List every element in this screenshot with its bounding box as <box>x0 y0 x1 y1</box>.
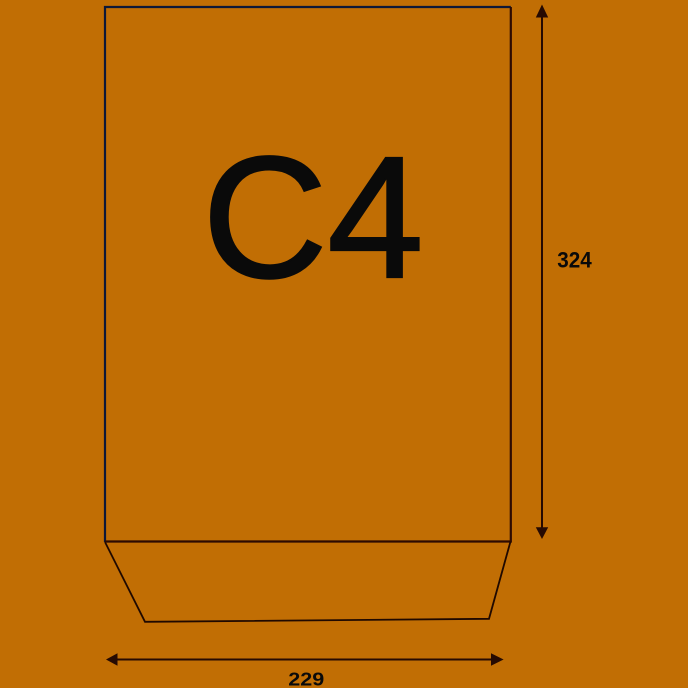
svg-text:C4: C4 <box>202 120 423 314</box>
svg-text:324: 324 <box>557 247 592 272</box>
svg-text:229: 229 <box>288 669 324 688</box>
